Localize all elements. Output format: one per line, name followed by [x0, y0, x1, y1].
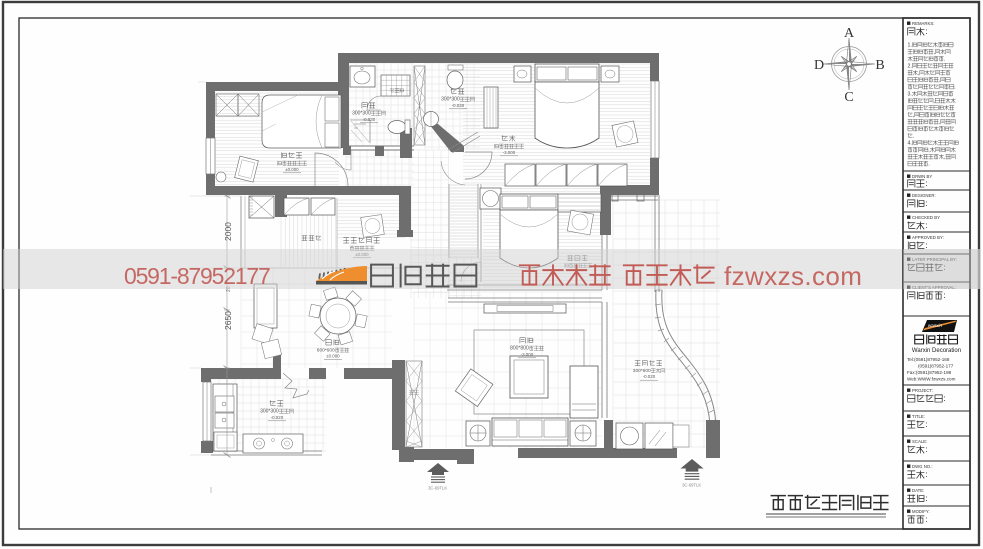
svg-text:D: D: [814, 58, 824, 73]
svg-text:DWG NO.:: DWG NO.:: [912, 464, 933, 469]
svg-text::: :: [925, 419, 928, 429]
svg-text:TITLE:: TITLE:: [912, 414, 925, 419]
svg-text:wanxin: wanxin: [928, 323, 943, 328]
svg-text:-3.000: -3.000: [521, 352, 534, 357]
svg-text:3C-69TLK: 3C-69TLK: [682, 483, 701, 488]
svg-text:(0591)87952-177: (0591)87952-177: [918, 364, 954, 369]
svg-text:,: ,: [939, 77, 940, 83]
svg-text:300*300: 300*300: [352, 111, 371, 117]
svg-text:C: C: [844, 90, 853, 105]
svg-text:-3.000: -3.000: [503, 150, 516, 155]
svg-text:fzwxzs.com: fzwxzs.com: [724, 261, 862, 291]
svg-text:A: A: [844, 26, 855, 41]
svg-text:.: .: [913, 133, 914, 139]
svg-text:3C-69TLK: 3C-69TLK: [428, 485, 447, 490]
svg-text:.: .: [944, 56, 945, 62]
svg-text:,: ,: [944, 154, 945, 160]
svg-text:-0.030: -0.030: [363, 117, 376, 122]
svg-text:±0.000: ±0.000: [285, 167, 299, 172]
svg-text:DRWN BY: DRWN BY: [912, 174, 932, 179]
svg-text::: :: [925, 514, 928, 524]
svg-text:PROJECT:: PROJECT:: [912, 388, 933, 393]
svg-text:0591-87952177: 0591-87952177: [124, 263, 270, 289]
svg-text:,: ,: [928, 147, 929, 153]
svg-text:,: ,: [934, 98, 935, 104]
svg-text:300*300: 300*300: [260, 409, 279, 415]
svg-text:2650: 2650: [223, 311, 233, 330]
svg-text:800*800: 800*800: [510, 346, 529, 352]
svg-text:1.: 1.: [908, 42, 912, 48]
svg-text:Fax:(0591)87952-198: Fax:(0591)87952-198: [907, 370, 952, 375]
svg-text:,: ,: [934, 49, 935, 55]
svg-text:-0.020: -0.020: [271, 415, 284, 420]
svg-text:.: .: [928, 161, 929, 167]
svg-text:3.: 3.: [908, 91, 912, 97]
svg-text::: :: [925, 444, 928, 454]
svg-text:DESIGNER:: DESIGNER:: [912, 193, 936, 198]
svg-text:300*300: 300*300: [441, 97, 460, 103]
svg-text::: :: [943, 393, 946, 403]
svg-text:-0.030: -0.030: [452, 103, 465, 108]
svg-text:DATE:: DATE:: [912, 488, 924, 493]
svg-text:,: ,: [913, 112, 914, 118]
svg-text:,: ,: [939, 119, 940, 125]
svg-text::: :: [943, 290, 946, 300]
svg-text:Warxin Decoration: Warxin Decoration: [912, 348, 961, 354]
svg-text::: :: [925, 198, 928, 208]
svg-text:2000: 2000: [223, 222, 233, 241]
svg-text:REMARKS:: REMARKS:: [912, 21, 934, 26]
svg-text:.: .: [954, 84, 955, 90]
svg-text:2.: 2.: [908, 63, 912, 69]
svg-text:4.: 4.: [908, 140, 912, 146]
svg-text:±0.000: ±0.000: [326, 354, 340, 359]
svg-text::: :: [925, 178, 928, 188]
svg-text:Tel:(0591)87952-168: Tel:(0591)87952-168: [907, 357, 950, 362]
svg-text::: :: [925, 220, 928, 230]
svg-text::: :: [925, 240, 928, 250]
svg-text::: :: [925, 493, 928, 503]
svg-text:Web:WWW.fzwxzs.com: Web:WWW.fzwxzs.com: [907, 377, 956, 382]
svg-text::: :: [925, 26, 928, 36]
svg-text:,: ,: [918, 70, 919, 76]
svg-text::: :: [925, 469, 928, 479]
svg-text:-0.020: -0.020: [643, 374, 656, 379]
svg-text:B: B: [875, 58, 884, 73]
